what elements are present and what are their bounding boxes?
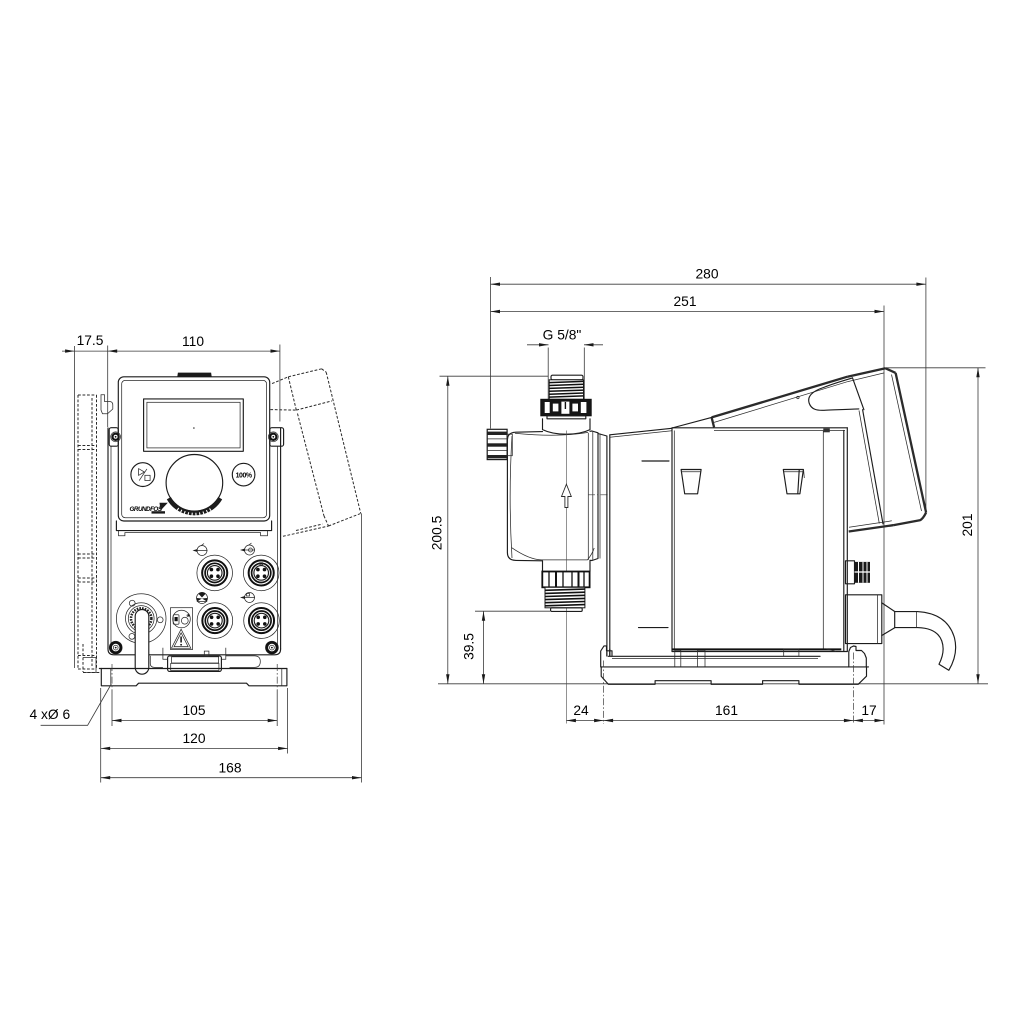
svg-text:168: 168: [218, 760, 241, 775]
svg-text:201: 201: [960, 513, 975, 536]
svg-text:100%: 100%: [236, 472, 252, 479]
svg-text:17.5: 17.5: [77, 333, 104, 348]
svg-text:200.5: 200.5: [430, 515, 445, 550]
svg-text:17: 17: [861, 703, 876, 718]
svg-text:110: 110: [182, 334, 204, 349]
svg-text:161: 161: [715, 703, 738, 718]
svg-text:4 xØ 6: 4 xØ 6: [30, 707, 71, 722]
svg-text:24: 24: [573, 703, 589, 718]
svg-text:280: 280: [695, 267, 718, 282]
svg-text:105: 105: [182, 703, 205, 718]
svg-text:39.5: 39.5: [462, 633, 477, 660]
svg-text:120: 120: [182, 731, 205, 746]
svg-text:G 5/8": G 5/8": [543, 328, 582, 343]
svg-text:251: 251: [673, 294, 696, 309]
